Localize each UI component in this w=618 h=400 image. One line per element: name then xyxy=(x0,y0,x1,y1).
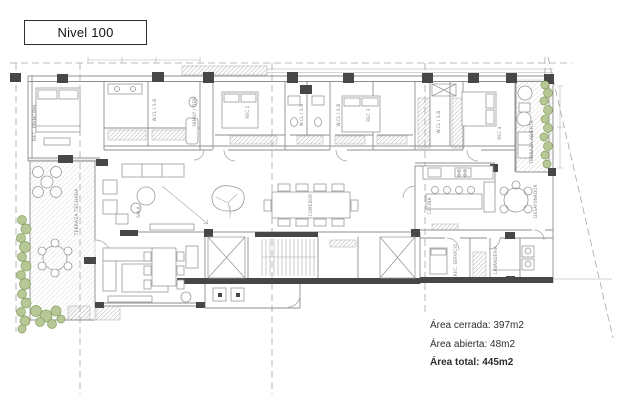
room-label-terraza-abierta: TERRAZA ABIERTA xyxy=(529,120,535,165)
room-label-terraza-techada: TERRAZA TECHADA xyxy=(74,189,80,237)
level-title-box: Nivel 100 xyxy=(24,20,147,45)
room-label-wcl-sb-2: W.CL / S.B xyxy=(299,104,304,127)
room-label-desayunador: DESAYUNADOR xyxy=(533,184,538,218)
area-total: Área total: 445m2 xyxy=(430,357,524,368)
area-summary: Área cerrada: 397m2 Área abierta: 48m2 Á… xyxy=(430,320,524,376)
level-title: Nivel 100 xyxy=(58,25,114,40)
room-label-wcl-sb-master: W.CL / S.B xyxy=(152,99,157,122)
floor-plan-drawing: REC. PRINCIPAL FAMILY / DEN REC 2 REC 3 … xyxy=(0,0,618,400)
floor-plan-sheet: REC. PRINCIPAL FAMILY / DEN REC 2 REC 3 … xyxy=(0,0,618,400)
room-label-rec-principal: REC. PRINCIPAL xyxy=(32,103,38,141)
room-label-rec-3: REC 3 xyxy=(366,108,371,121)
area-abierta: Área abierta: 48m2 xyxy=(430,339,524,350)
room-label-comedor: COMEDOR xyxy=(308,194,313,217)
room-label-cocina: COCINA xyxy=(427,197,432,214)
room-label-lavanderia: LAVANDERIA xyxy=(493,246,498,274)
room-label-wcl-sb-3: W.CL / S.B xyxy=(336,104,341,127)
room-label-rec-4: REC 4 xyxy=(497,126,502,139)
room-label-sala: SALA xyxy=(136,206,141,217)
room-label-rec-servicio: REC. SERVICIO xyxy=(453,244,458,277)
room-label-family-den: FAMILY / DEN xyxy=(192,98,197,127)
room-label-wcl-sb-4: W.CL / S.B xyxy=(436,111,441,134)
area-cerrada: Área cerrada: 397m2 xyxy=(430,320,524,331)
room-label-rec-2: REC 2 xyxy=(245,105,250,118)
